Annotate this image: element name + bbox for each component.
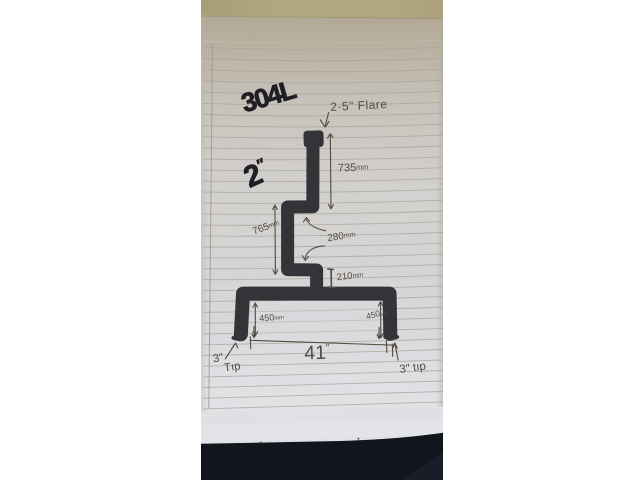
svg-text:2·5" Flare: 2·5" Flare <box>330 97 388 114</box>
svg-text:Tıp: Tıp <box>223 360 241 374</box>
